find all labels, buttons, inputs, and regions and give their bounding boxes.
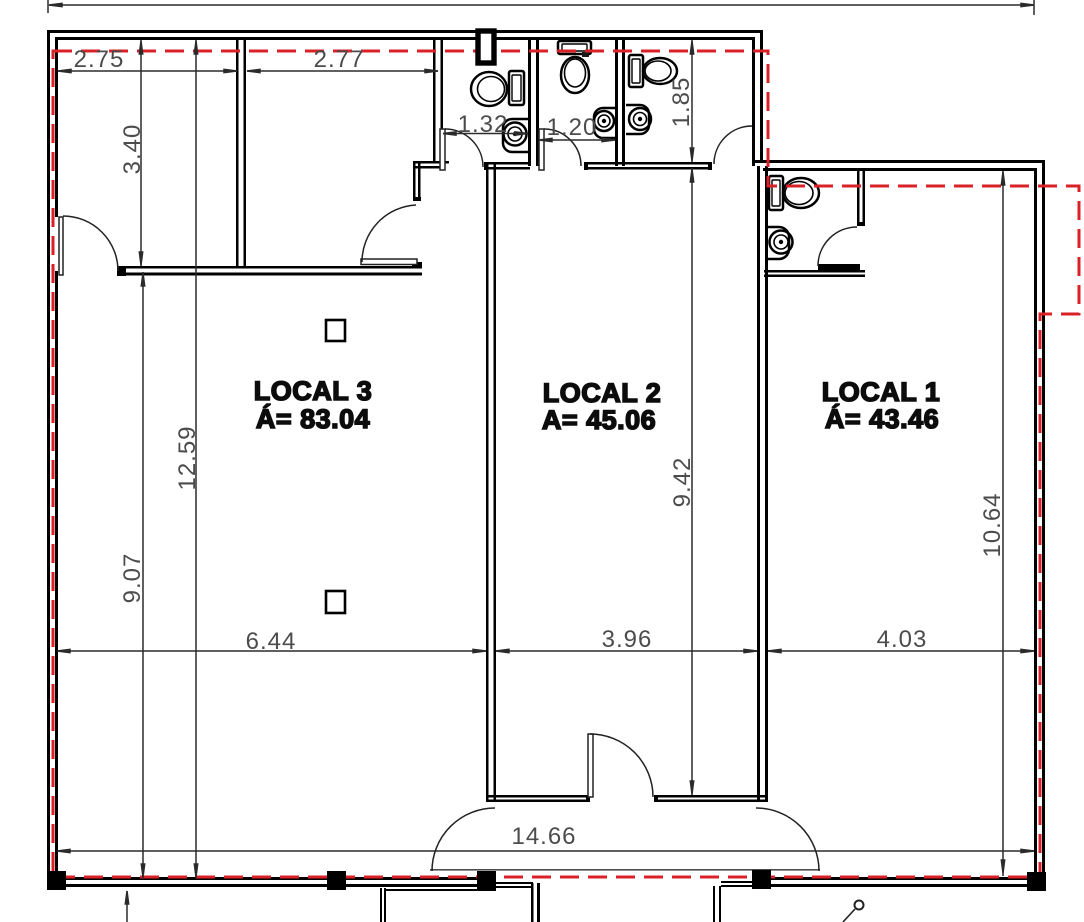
svg-text:LOCAL 3: LOCAL 3 bbox=[254, 376, 373, 406]
svg-text:A= 45.06: A= 45.06 bbox=[542, 405, 656, 435]
svg-text:4.03: 4.03 bbox=[877, 626, 928, 653]
svg-text:2.77: 2.77 bbox=[314, 46, 365, 73]
svg-text:3.96: 3.96 bbox=[602, 626, 653, 653]
svg-text:9.07: 9.07 bbox=[119, 553, 146, 604]
svg-text:6.44: 6.44 bbox=[246, 628, 297, 655]
svg-text:Á= 83.04: Á= 83.04 bbox=[256, 403, 370, 434]
svg-text:LOCAL 2: LOCAL 2 bbox=[543, 378, 662, 408]
svg-text:9.42: 9.42 bbox=[669, 457, 696, 508]
svg-text:1.85: 1.85 bbox=[668, 77, 695, 128]
svg-text:1.32: 1.32 bbox=[458, 111, 509, 138]
svg-text:12.59: 12.59 bbox=[174, 425, 201, 490]
svg-text:1.20: 1.20 bbox=[547, 114, 598, 141]
svg-text:10.64: 10.64 bbox=[979, 492, 1006, 557]
svg-text:Á= 43.46: Á= 43.46 bbox=[825, 403, 939, 434]
svg-text:3.40: 3.40 bbox=[119, 124, 146, 175]
svg-text:2.75: 2.75 bbox=[74, 46, 125, 73]
svg-text:14.66: 14.66 bbox=[511, 823, 576, 850]
svg-text:LOCAL 1: LOCAL 1 bbox=[822, 377, 941, 407]
